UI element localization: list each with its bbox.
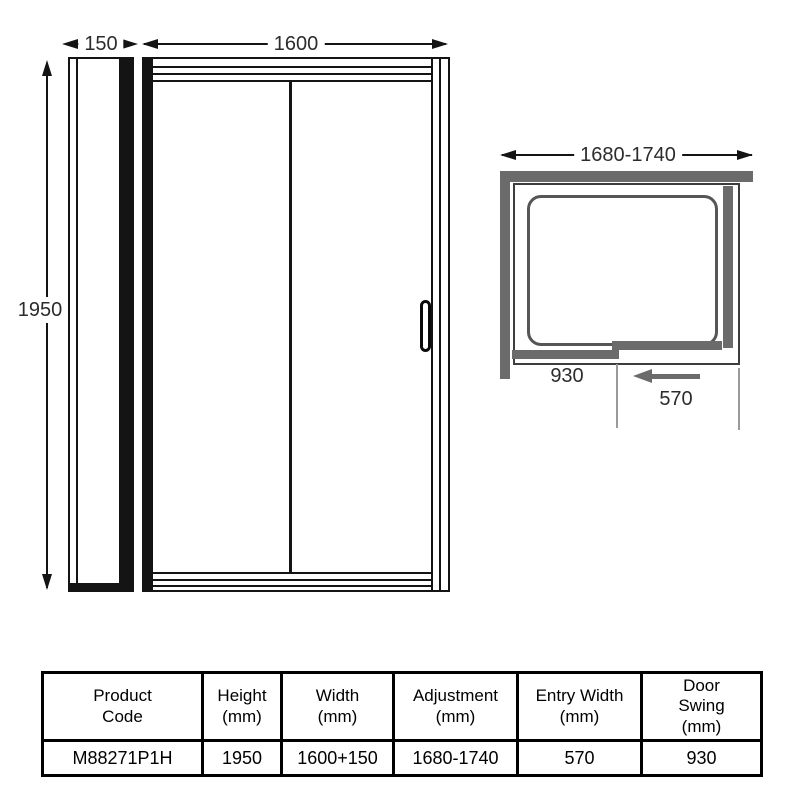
header-entry-width: Entry Width (mm) bbox=[519, 674, 643, 739]
left-wall bbox=[500, 171, 510, 379]
spec-table-header-row: Product Code Height (mm) Width (mm) Adju… bbox=[44, 674, 760, 742]
arrow-right-icon bbox=[122, 39, 138, 49]
header-line: (mm) bbox=[560, 707, 600, 727]
bottom-track-line bbox=[153, 585, 431, 587]
arrow-right-icon bbox=[737, 150, 753, 160]
header-line: (mm) bbox=[682, 717, 722, 737]
spec-table-data-row: M88271P1H 1950 1600+150 1680-1740 570 93… bbox=[44, 742, 760, 774]
door-handle bbox=[420, 300, 431, 352]
glass-divider-line bbox=[289, 81, 292, 573]
arrow-left-icon bbox=[500, 150, 516, 160]
adjustment-label: 1680-1740 bbox=[574, 145, 682, 165]
width-value: 1600+150 bbox=[283, 742, 395, 774]
header-line: Door bbox=[683, 676, 720, 696]
top-wall bbox=[500, 171, 753, 182]
top-track-line bbox=[153, 66, 431, 68]
arrow-up-icon bbox=[42, 60, 52, 76]
panel-width-label: 150 bbox=[78, 34, 123, 54]
arrow-right-icon bbox=[432, 39, 448, 49]
header-line: Swing bbox=[678, 696, 724, 716]
header-line: (mm) bbox=[222, 707, 262, 727]
panel-glass-edge-line bbox=[76, 59, 78, 590]
header-height: Height (mm) bbox=[204, 674, 283, 739]
extension-line bbox=[738, 368, 740, 430]
header-line: Adjustment bbox=[413, 686, 498, 706]
height-dimension-line bbox=[46, 64, 48, 588]
bottom-track-line bbox=[153, 579, 431, 581]
height-label: 1950 bbox=[14, 297, 67, 323]
arrow-left-icon bbox=[633, 369, 652, 383]
product-code-value: M88271P1H bbox=[44, 742, 204, 774]
sliding-door-plan-bar bbox=[612, 341, 722, 350]
header-line: Product bbox=[93, 686, 152, 706]
adjustment-value: 1680-1740 bbox=[395, 742, 519, 774]
header-line: Width bbox=[316, 686, 359, 706]
side-panel-plan-bar bbox=[723, 186, 733, 348]
header-door-swing: Door Swing (mm) bbox=[643, 674, 760, 739]
door-left-frame-bar bbox=[144, 59, 153, 590]
arrow-left-icon bbox=[142, 39, 158, 49]
arrow-down-icon bbox=[42, 574, 52, 590]
panel-right-profile-bar bbox=[119, 59, 132, 590]
header-line: Height bbox=[217, 686, 266, 706]
panel-bottom-bar bbox=[70, 583, 132, 590]
top-track-line bbox=[153, 73, 431, 75]
entry-width-value: 570 bbox=[519, 742, 643, 774]
shower-tray bbox=[527, 195, 718, 346]
sliding-door-assembly bbox=[142, 57, 450, 592]
entry-width-label: 570 bbox=[657, 389, 694, 409]
header-width: Width (mm) bbox=[283, 674, 395, 739]
arrow-left-icon bbox=[62, 39, 78, 49]
door-width-label: 1600 bbox=[268, 34, 325, 54]
spec-table: Product Code Height (mm) Width (mm) Adju… bbox=[41, 671, 763, 777]
fixed-panel-plan-bar bbox=[512, 350, 619, 359]
header-line: Entry Width bbox=[536, 686, 624, 706]
header-adjustment: Adjustment (mm) bbox=[395, 674, 519, 739]
top-track-line bbox=[153, 80, 431, 82]
bottom-track-line bbox=[153, 572, 431, 574]
header-line: (mm) bbox=[318, 707, 358, 727]
door-right-frame-line bbox=[431, 59, 433, 590]
door-right-frame-line bbox=[439, 59, 441, 590]
header-line: (mm) bbox=[436, 707, 476, 727]
shower-door-technical-drawing: 150 1600 1950 bbox=[0, 0, 800, 800]
inline-side-panel bbox=[68, 57, 134, 592]
height-value: 1950 bbox=[204, 742, 283, 774]
header-product-code: Product Code bbox=[44, 674, 204, 739]
extension-line bbox=[616, 364, 618, 428]
door-swing-value: 930 bbox=[643, 742, 760, 774]
door-swing-label: 930 bbox=[548, 366, 585, 386]
door-slide-arrow-shaft bbox=[651, 374, 700, 379]
header-line: Code bbox=[102, 707, 143, 727]
